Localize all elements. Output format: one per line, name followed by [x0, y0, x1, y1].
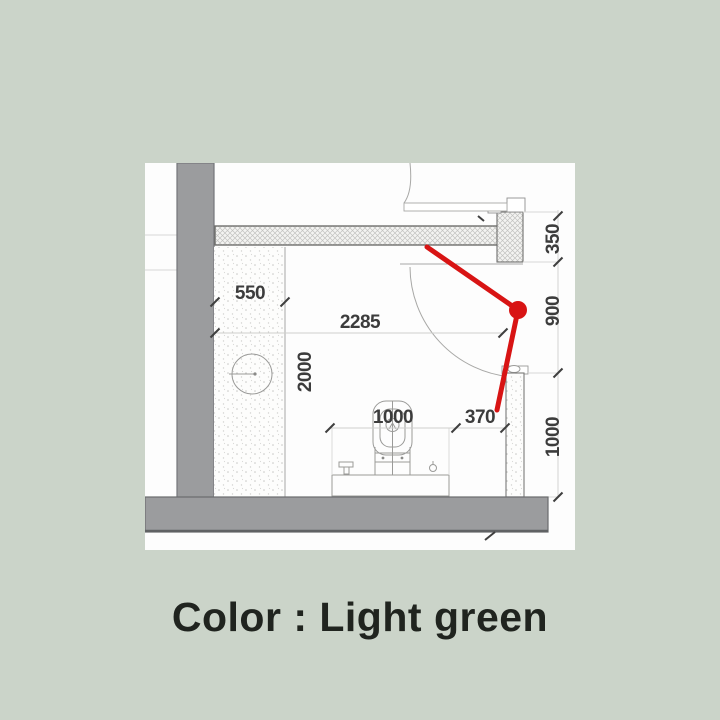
dim-label-900: 900: [543, 296, 564, 326]
dim-label-370: 370: [465, 407, 495, 428]
floor-plan-drawing: 550 2285 2000 1000 370 350 900 1000: [145, 163, 575, 550]
floor-plan-image-panel: 550 2285 2000 1000 370 350 900 1000: [145, 163, 575, 550]
dim-label-2000: 2000: [295, 352, 316, 392]
color-caption: Color : Light green: [0, 592, 720, 642]
dim-label-2285: 2285: [340, 312, 381, 333]
door-jamb-hatched: [497, 212, 523, 262]
upper-door-tick: [478, 216, 484, 221]
faucet-symbol-left: [339, 462, 353, 474]
product-location-dot: [509, 301, 527, 319]
dim-label-1000-bottom: 1000: [373, 407, 413, 428]
bathroom-door-swing-arc: [410, 267, 512, 377]
upper-door-leaf: [404, 203, 507, 211]
door-frame-detail-large: [507, 198, 525, 212]
lower-right-wall: [506, 373, 524, 497]
construction-lines-left: [145, 235, 177, 270]
vanity-counter: [332, 475, 449, 496]
left-wall-column: [177, 163, 214, 503]
below-wall-tick: [485, 532, 495, 540]
dim-label-550: 550: [235, 283, 265, 304]
fixture-extension-lines: [332, 428, 449, 475]
bottom-floor-wall: [145, 497, 548, 532]
product-location-line: [427, 247, 518, 410]
faucet-symbol-right: [430, 461, 437, 472]
product-image-page: { "colors":{ "bg":"#cbd4c9", "panel":"#f…: [0, 0, 720, 720]
dim-label-350: 350: [543, 224, 564, 254]
top-hatched-wall: [215, 226, 501, 245]
upper-door-swing-arc: [404, 163, 411, 203]
door-stop-ellipse: [508, 366, 520, 373]
dim-label-1000-right: 1000: [543, 417, 564, 457]
